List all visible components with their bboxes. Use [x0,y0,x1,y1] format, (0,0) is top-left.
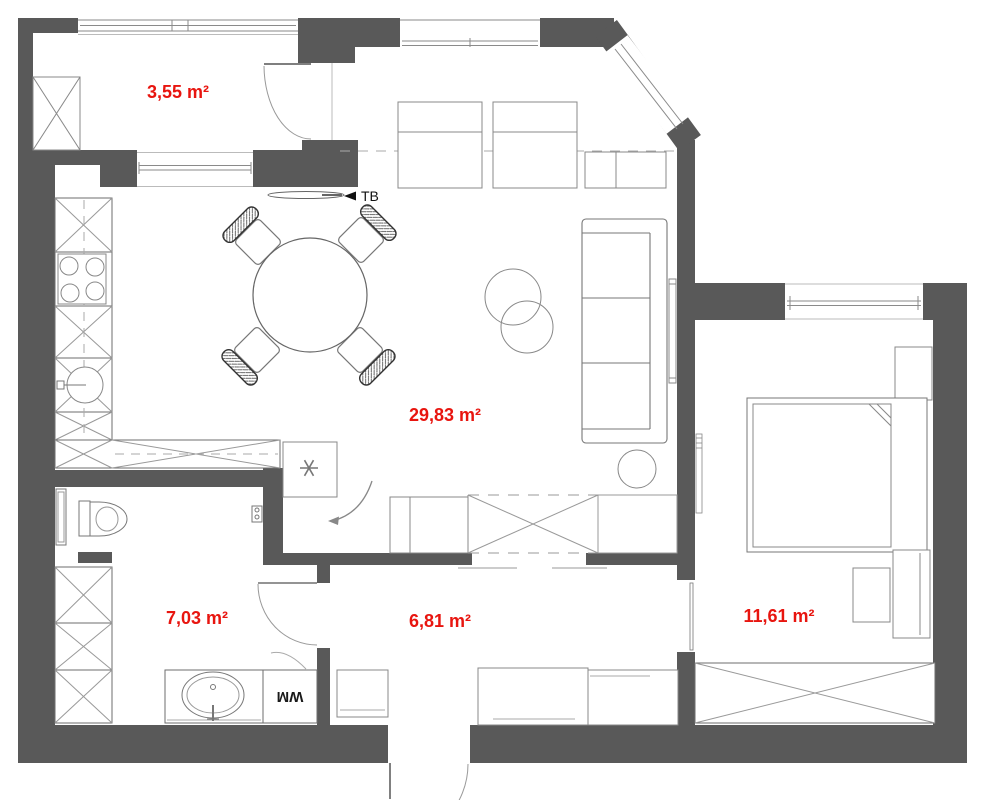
tv-label: ТВ [361,188,379,204]
floor-plan-svg: ТВ [0,0,990,800]
hall-cabinets [337,668,678,725]
room-label-bathroom: 7,03 m² [166,608,228,628]
bathroom-wardrobe [55,567,112,723]
sofa [582,219,667,443]
floor-plan: ТВ [0,0,990,800]
washing-machine: WM [263,670,317,723]
room-label-balcony: 3,55 m² [147,82,209,102]
washing-machine-label: WM [277,688,304,705]
towel-radiator [56,489,66,545]
bedroom-desk [853,568,890,622]
kitchen-counter [55,198,112,440]
bed [747,398,927,552]
bedroom-cabinet [893,550,930,638]
dining-table [253,238,367,352]
room-label-living: 29,83 m² [409,405,481,425]
kitchen-lower-counter [55,440,280,468]
pouf [618,450,656,488]
bedroom-wardrobe [695,663,935,723]
bedroom-wall-panel [696,434,702,513]
radiator [669,279,676,383]
stove [58,254,106,304]
bathroom-sink [165,670,263,723]
bedroom-door [690,583,693,650]
room-label-bedroom: 11,61 m² [743,606,814,626]
nightstand [895,347,932,400]
balcony-wardrobe [33,77,80,150]
corner-cabinet [283,442,337,497]
room-label-hallway: 6,81 m² [409,611,471,631]
